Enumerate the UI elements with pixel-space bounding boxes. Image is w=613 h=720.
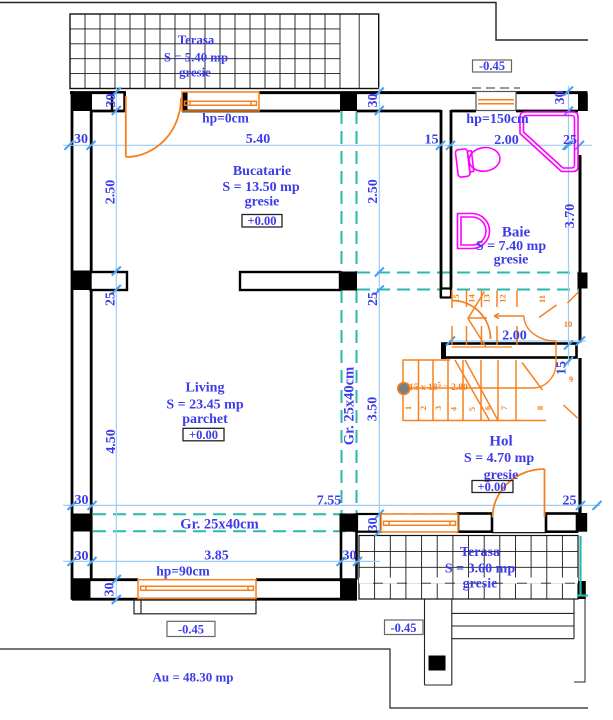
svg-text:25: 25 xyxy=(563,494,577,509)
svg-text:30: 30 xyxy=(103,583,118,597)
svg-text:Living: Living xyxy=(186,381,225,396)
svg-text:Terasa: Terasa xyxy=(460,545,500,560)
svg-text:30: 30 xyxy=(104,94,119,108)
svg-text:parchet: parchet xyxy=(182,412,228,427)
svg-text:15: 15 xyxy=(555,361,570,375)
svg-text:2.50: 2.50 xyxy=(366,179,381,204)
svg-text:25: 25 xyxy=(366,292,381,306)
svg-text:30: 30 xyxy=(553,91,568,105)
svg-text:14: 14 xyxy=(467,294,477,303)
svg-text:5: 5 xyxy=(467,407,477,411)
svg-text:gresie: gresie xyxy=(245,195,280,210)
svg-text:30: 30 xyxy=(366,518,381,532)
svg-text:+0.00: +0.00 xyxy=(478,480,507,494)
svg-text:15: 15 xyxy=(425,133,439,148)
svg-text:Hol: Hol xyxy=(489,434,512,450)
svg-text:9: 9 xyxy=(569,374,573,384)
svg-text:gresie: gresie xyxy=(494,253,529,268)
svg-text:3: 3 xyxy=(433,406,443,410)
svg-text:25: 25 xyxy=(104,292,119,306)
svg-text:25: 25 xyxy=(563,133,577,148)
svg-text:3.85: 3.85 xyxy=(204,549,229,564)
svg-text:Gr. 25x40cm: Gr. 25x40cm xyxy=(342,367,358,445)
svg-text:hp=90cm: hp=90cm xyxy=(156,564,210,579)
svg-text:3.50: 3.50 xyxy=(366,397,381,422)
svg-text:-0.45: -0.45 xyxy=(479,59,505,73)
svg-text:-0.45: -0.45 xyxy=(178,623,204,637)
svg-text:S = 4.70 mp: S = 4.70 mp xyxy=(464,451,534,466)
svg-text:8: 8 xyxy=(535,406,545,410)
svg-text:5.40: 5.40 xyxy=(246,132,271,147)
svg-text:hp=150cm: hp=150cm xyxy=(466,112,529,127)
svg-text:Terasa: Terasa xyxy=(178,33,215,47)
svg-text:+0.00: +0.00 xyxy=(248,214,277,228)
svg-text:6: 6 xyxy=(483,406,493,410)
svg-text:gresie: gresie xyxy=(463,577,498,592)
svg-text:S = 5.40 mp: S = 5.40 mp xyxy=(164,51,228,65)
svg-text:10: 10 xyxy=(564,319,573,329)
svg-text:30: 30 xyxy=(343,549,357,564)
svg-text:12: 12 xyxy=(498,294,508,303)
svg-text:+0.00: +0.00 xyxy=(189,428,218,442)
svg-text:gresie: gresie xyxy=(179,66,211,80)
svg-text:2.50: 2.50 xyxy=(104,180,119,205)
svg-text:Gr. 25x40cm: Gr. 25x40cm xyxy=(180,517,258,533)
svg-text:4.50: 4.50 xyxy=(104,429,119,454)
svg-text:13: 13 xyxy=(482,294,492,303)
svg-text:7.55: 7.55 xyxy=(317,494,342,509)
svg-text:11: 11 xyxy=(537,295,547,303)
svg-text:2.00: 2.00 xyxy=(502,329,527,344)
svg-text:S = 23.45 mp: S = 23.45 mp xyxy=(166,398,243,413)
svg-text:2.00: 2.00 xyxy=(494,133,519,148)
svg-text:1: 1 xyxy=(403,406,413,410)
svg-text:Au = 48.30 mp: Au = 48.30 mp xyxy=(152,670,233,685)
svg-text:S = 3.60 mp: S = 3.60 mp xyxy=(445,562,515,577)
svg-text:-0.45: -0.45 xyxy=(390,621,416,635)
svg-text:30: 30 xyxy=(74,132,88,147)
svg-text:3.70: 3.70 xyxy=(563,204,578,229)
svg-text:15: 15 xyxy=(451,294,461,303)
svg-text:Bucatarie: Bucatarie xyxy=(233,164,291,179)
svg-text:30: 30 xyxy=(75,549,89,564)
svg-text:30: 30 xyxy=(75,493,89,508)
svg-text:hp=0cm: hp=0cm xyxy=(202,111,249,126)
svg-text:S = 13.50 mp: S = 13.50 mp xyxy=(222,180,299,195)
svg-text:30: 30 xyxy=(366,94,381,108)
svg-text:2: 2 xyxy=(418,406,428,410)
